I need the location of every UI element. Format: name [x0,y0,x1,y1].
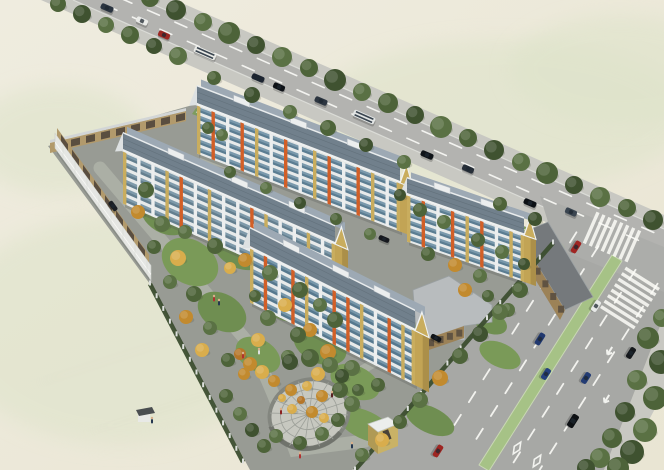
rendering-canvas [0,0,664,470]
aerial-rendering [0,0,664,470]
